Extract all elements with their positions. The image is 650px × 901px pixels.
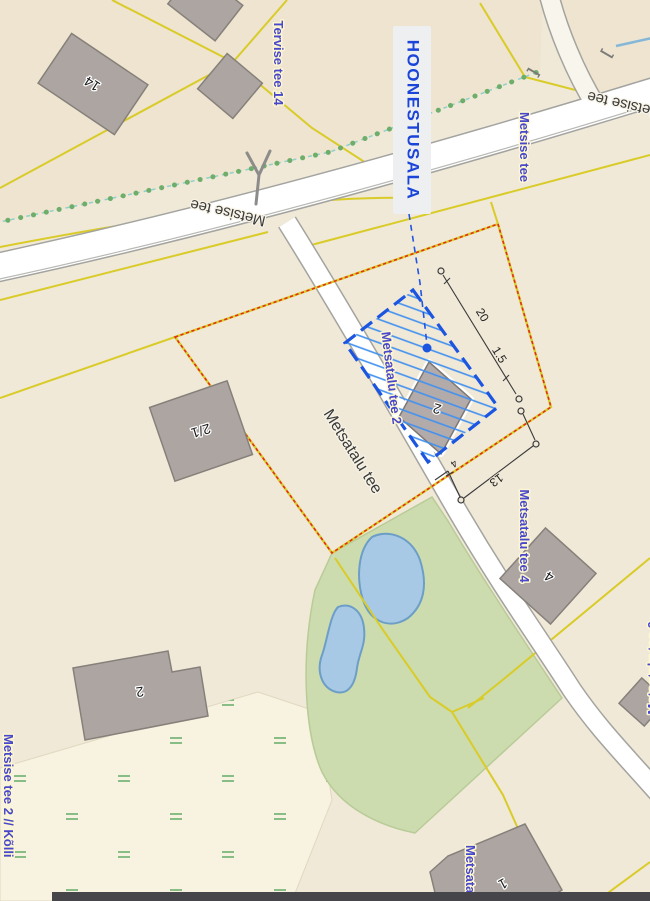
leader-anchor-dot — [423, 344, 432, 353]
map-page: ] [ 20 1.5 — [0, 0, 650, 901]
label-metsise-tee: Metsise tee — [517, 112, 532, 182]
label-metsatalu-tee-4: Metsatalu tee 4 — [517, 489, 532, 583]
label-metsise-tee-2-kolli: Metsise tee 2 // Kõlli — [1, 734, 16, 858]
label-tervise-tee-14: Tervise tee 14 — [271, 20, 286, 106]
map-canvas[interactable]: ] [ 20 1.5 — [0, 0, 650, 901]
bottom-bar — [52, 892, 650, 901]
hoonestusala-label: HOONESTUSALA — [404, 40, 423, 201]
label-metsatalu-tee-6: Metsatalu tee 6 — [645, 621, 650, 714]
